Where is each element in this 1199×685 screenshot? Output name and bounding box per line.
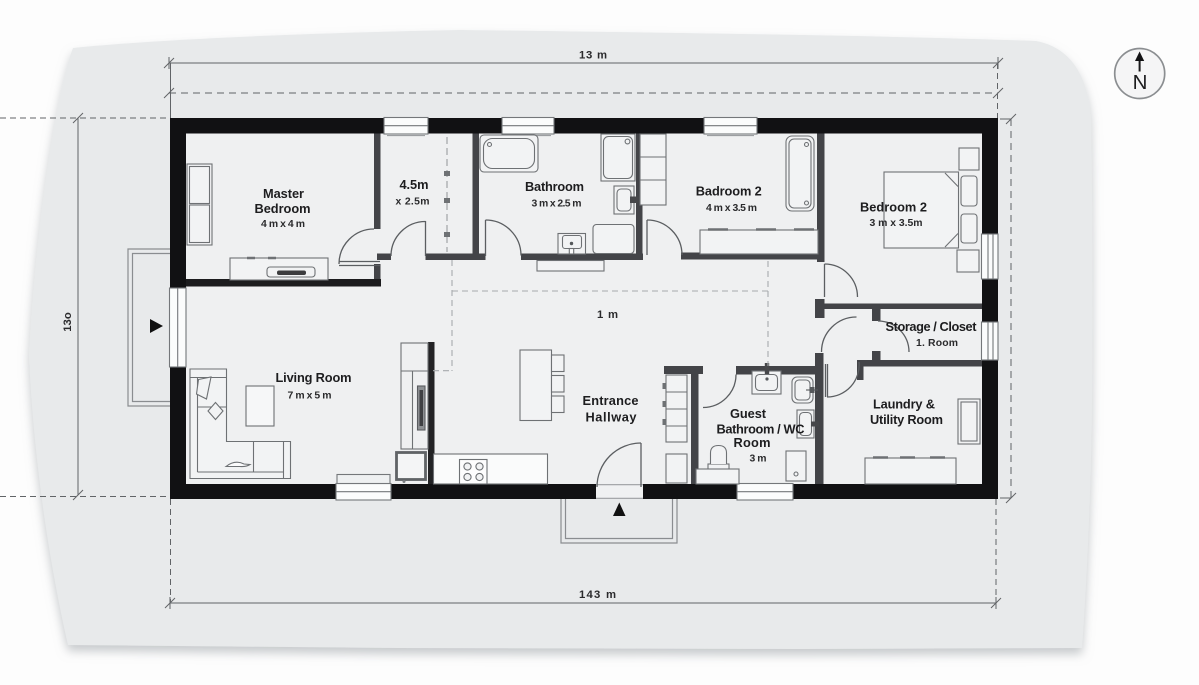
svg-text:Master: Master [263,186,304,201]
svg-text:1. Room: 1. Room [916,338,958,349]
svg-text:Living Room: Living Room [276,370,352,385]
svg-text:Room: Room [734,435,771,450]
svg-text:4 m x 3.5 m: 4 m x 3.5 m [706,203,757,214]
svg-text:3 m x 3.5m: 3 m x 3.5m [870,218,923,229]
svg-text:N: N [1133,71,1148,94]
svg-text:4 m x 4 m: 4 m x 4 m [261,219,305,230]
svg-text:Bathroom: Bathroom [525,179,584,194]
svg-text:4.5m: 4.5m [400,177,429,192]
svg-text:Utility Room: Utility Room [870,412,943,427]
svg-text:3 m x 2.5 m: 3 m x 2.5 m [532,198,582,209]
svg-text:Badroom 2: Badroom 2 [696,183,762,198]
svg-text:Laundry &: Laundry & [873,397,935,412]
svg-text:7 m x 5 m: 7 m x 5 m [288,390,332,401]
svg-text:Storage / Closet: Storage / Closet [886,319,978,334]
svg-text:1 m: 1 m [597,309,618,321]
svg-text:143 m: 143 m [579,589,616,601]
svg-text:Bedroom: Bedroom [255,201,311,216]
svg-text:x 2.5m: x 2.5m [396,197,430,208]
svg-text:Hallway: Hallway [586,409,638,424]
svg-text:13 m: 13 m [579,50,607,62]
svg-text:Bedroom 2: Bedroom 2 [860,200,927,215]
svg-text:Guest: Guest [730,406,767,421]
svg-text:13o: 13o [62,312,74,332]
svg-text:Entrance: Entrance [583,393,639,408]
svg-text:3 m: 3 m [750,454,767,465]
